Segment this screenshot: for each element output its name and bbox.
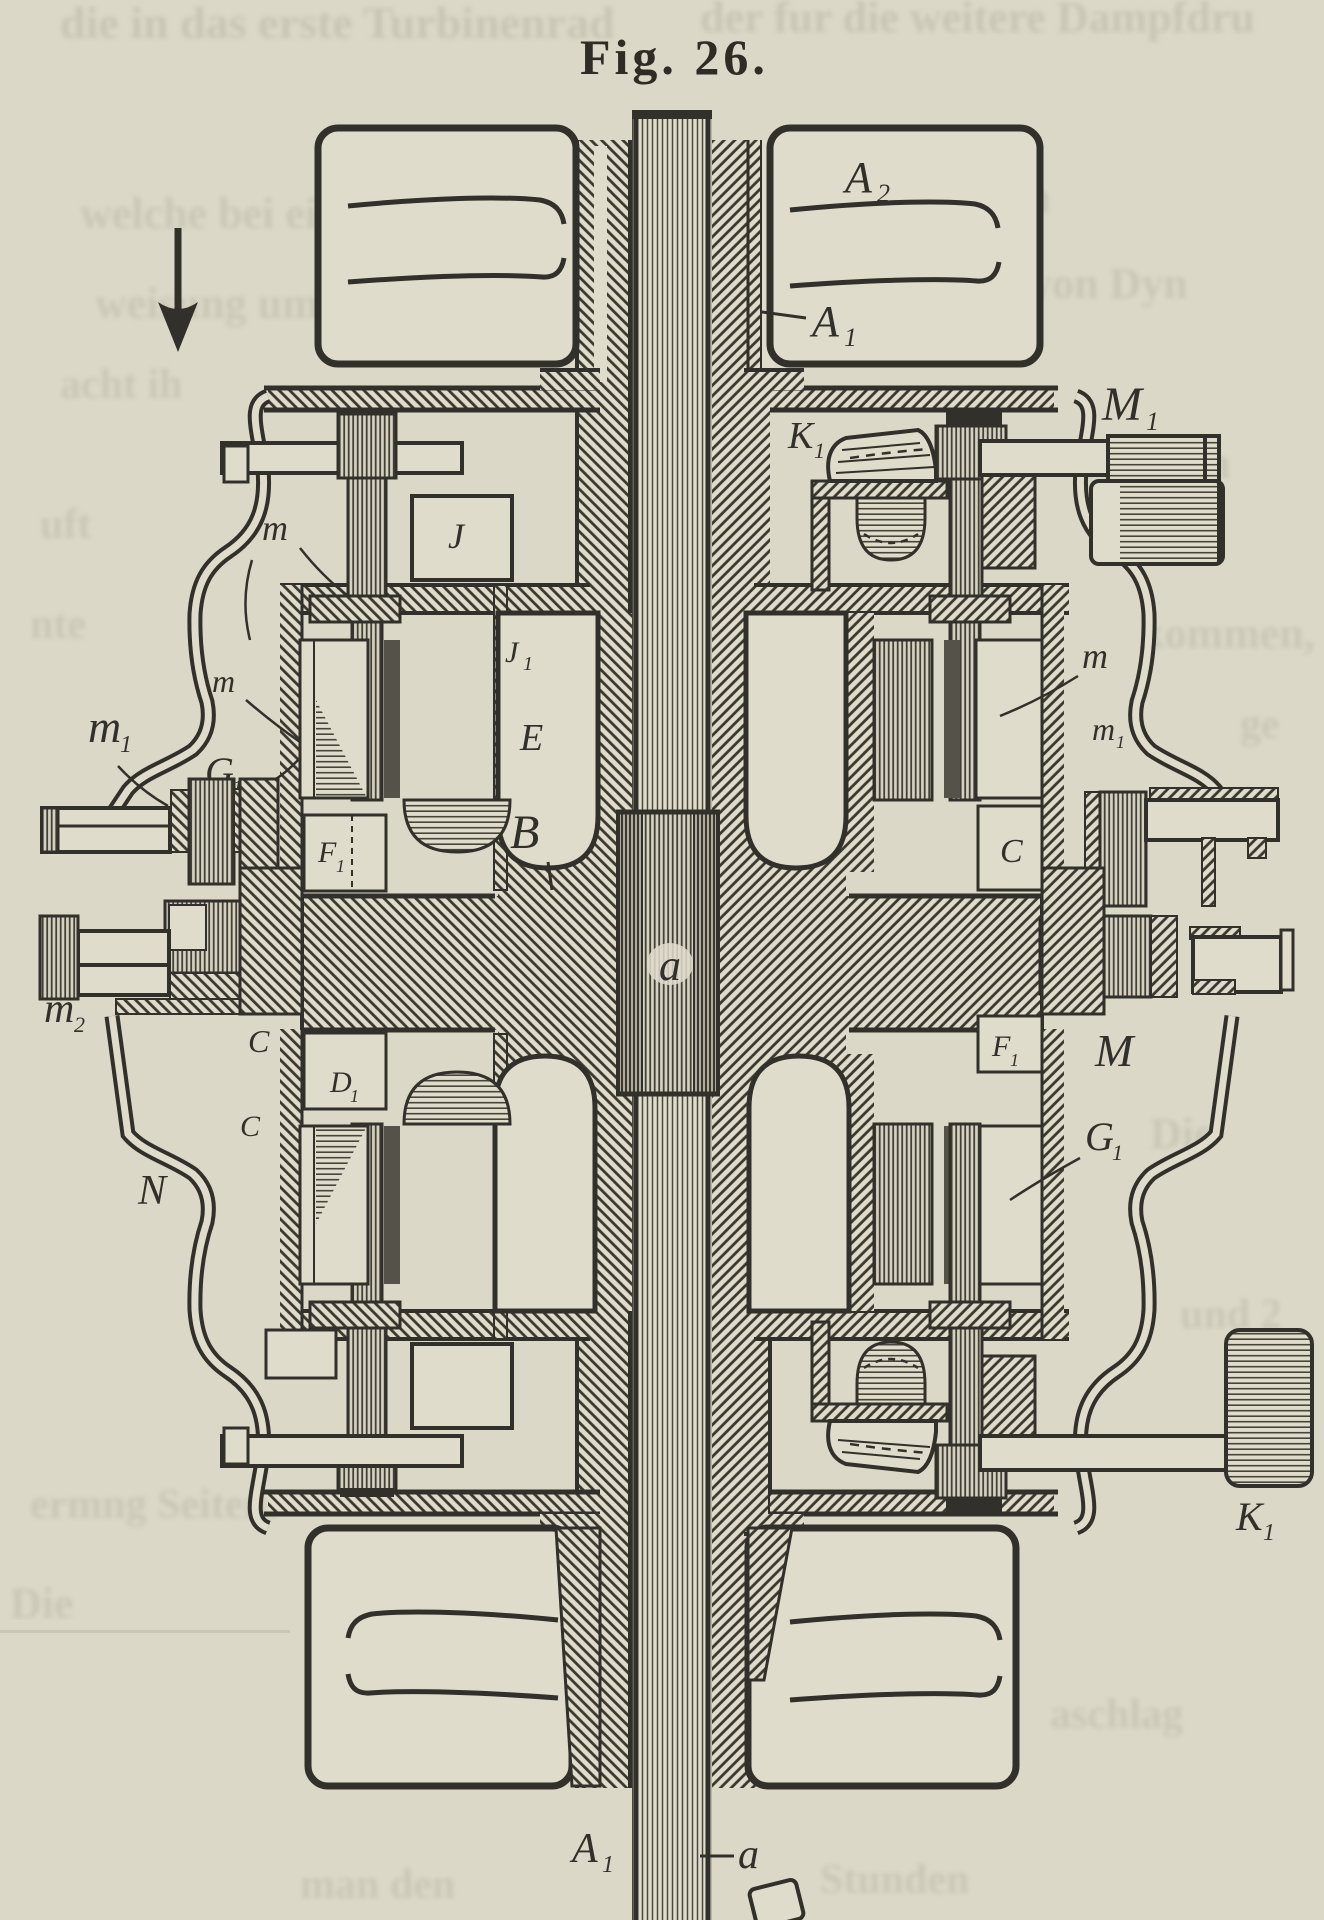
svg-text:kommen,: kommen, xyxy=(1140,609,1315,658)
svg-text:1: 1 xyxy=(1010,1050,1019,1070)
svg-text:1: 1 xyxy=(1146,407,1159,436)
svg-text:a: a xyxy=(659,941,681,990)
svg-text:J: J xyxy=(505,636,520,669)
svg-text:m: m xyxy=(212,663,235,699)
svg-text:A: A xyxy=(842,153,873,202)
svg-text:K: K xyxy=(1235,1494,1265,1539)
svg-text:m: m xyxy=(44,986,74,1032)
svg-text:m: m xyxy=(262,508,288,548)
svg-text:M: M xyxy=(1101,378,1145,431)
svg-text:m: m xyxy=(1082,636,1108,676)
svg-text:J: J xyxy=(448,516,466,556)
svg-text:Stunden: Stunden xyxy=(820,1857,969,1903)
svg-text:nte: nte xyxy=(30,602,86,648)
svg-text:1: 1 xyxy=(844,323,857,352)
svg-text:1: 1 xyxy=(523,653,533,675)
svg-text:die in das erste Turbinenrad: die in das erste Turbinenrad xyxy=(60,0,615,48)
svg-text:m: m xyxy=(88,701,121,752)
svg-text:F: F xyxy=(991,1030,1011,1063)
svg-text:a: a xyxy=(738,1832,759,1878)
svg-text:1: 1 xyxy=(814,438,825,463)
svg-text:B: B xyxy=(510,806,539,859)
svg-text:D: D xyxy=(329,1066,352,1099)
svg-text:man den: man den xyxy=(300,1862,455,1908)
svg-text:aschlag: aschlag xyxy=(1050,1692,1183,1738)
svg-text:1: 1 xyxy=(1263,1520,1275,1546)
svg-text:m: m xyxy=(1092,711,1115,747)
svg-text:acht ih: acht ih xyxy=(60,362,183,408)
svg-text:A: A xyxy=(569,1826,598,1872)
svg-text:2: 2 xyxy=(74,1012,85,1037)
svg-text:1: 1 xyxy=(1112,1140,1123,1165)
svg-text:ge: ge xyxy=(1240,702,1280,748)
svg-text:1: 1 xyxy=(602,1852,614,1878)
svg-text:G: G xyxy=(1085,1114,1114,1159)
svg-text:C: C xyxy=(240,1110,261,1143)
svg-text:1: 1 xyxy=(350,1086,359,1106)
svg-text:der fur die weitere Dampfdru: der fur die weitere Dampfdru xyxy=(700,0,1255,42)
svg-text:uft: uft xyxy=(40,502,91,548)
svg-text:E: E xyxy=(519,717,543,759)
svg-text:2: 2 xyxy=(877,179,890,208)
svg-text:Fig. 26.: Fig. 26. xyxy=(580,29,769,85)
svg-text:M: M xyxy=(1094,1025,1136,1076)
svg-text:1: 1 xyxy=(120,732,132,758)
svg-text:1: 1 xyxy=(1116,732,1125,752)
svg-text:ermng Seiten.: ermng Seiten. xyxy=(30,1482,277,1528)
svg-text:A: A xyxy=(809,297,840,346)
svg-text:K: K xyxy=(787,415,815,457)
svg-text:N: N xyxy=(137,1168,168,1214)
svg-text:C: C xyxy=(248,1023,270,1059)
svg-text:F: F xyxy=(317,836,337,869)
svg-text:C: C xyxy=(1000,833,1023,870)
svg-text:1: 1 xyxy=(336,856,345,876)
